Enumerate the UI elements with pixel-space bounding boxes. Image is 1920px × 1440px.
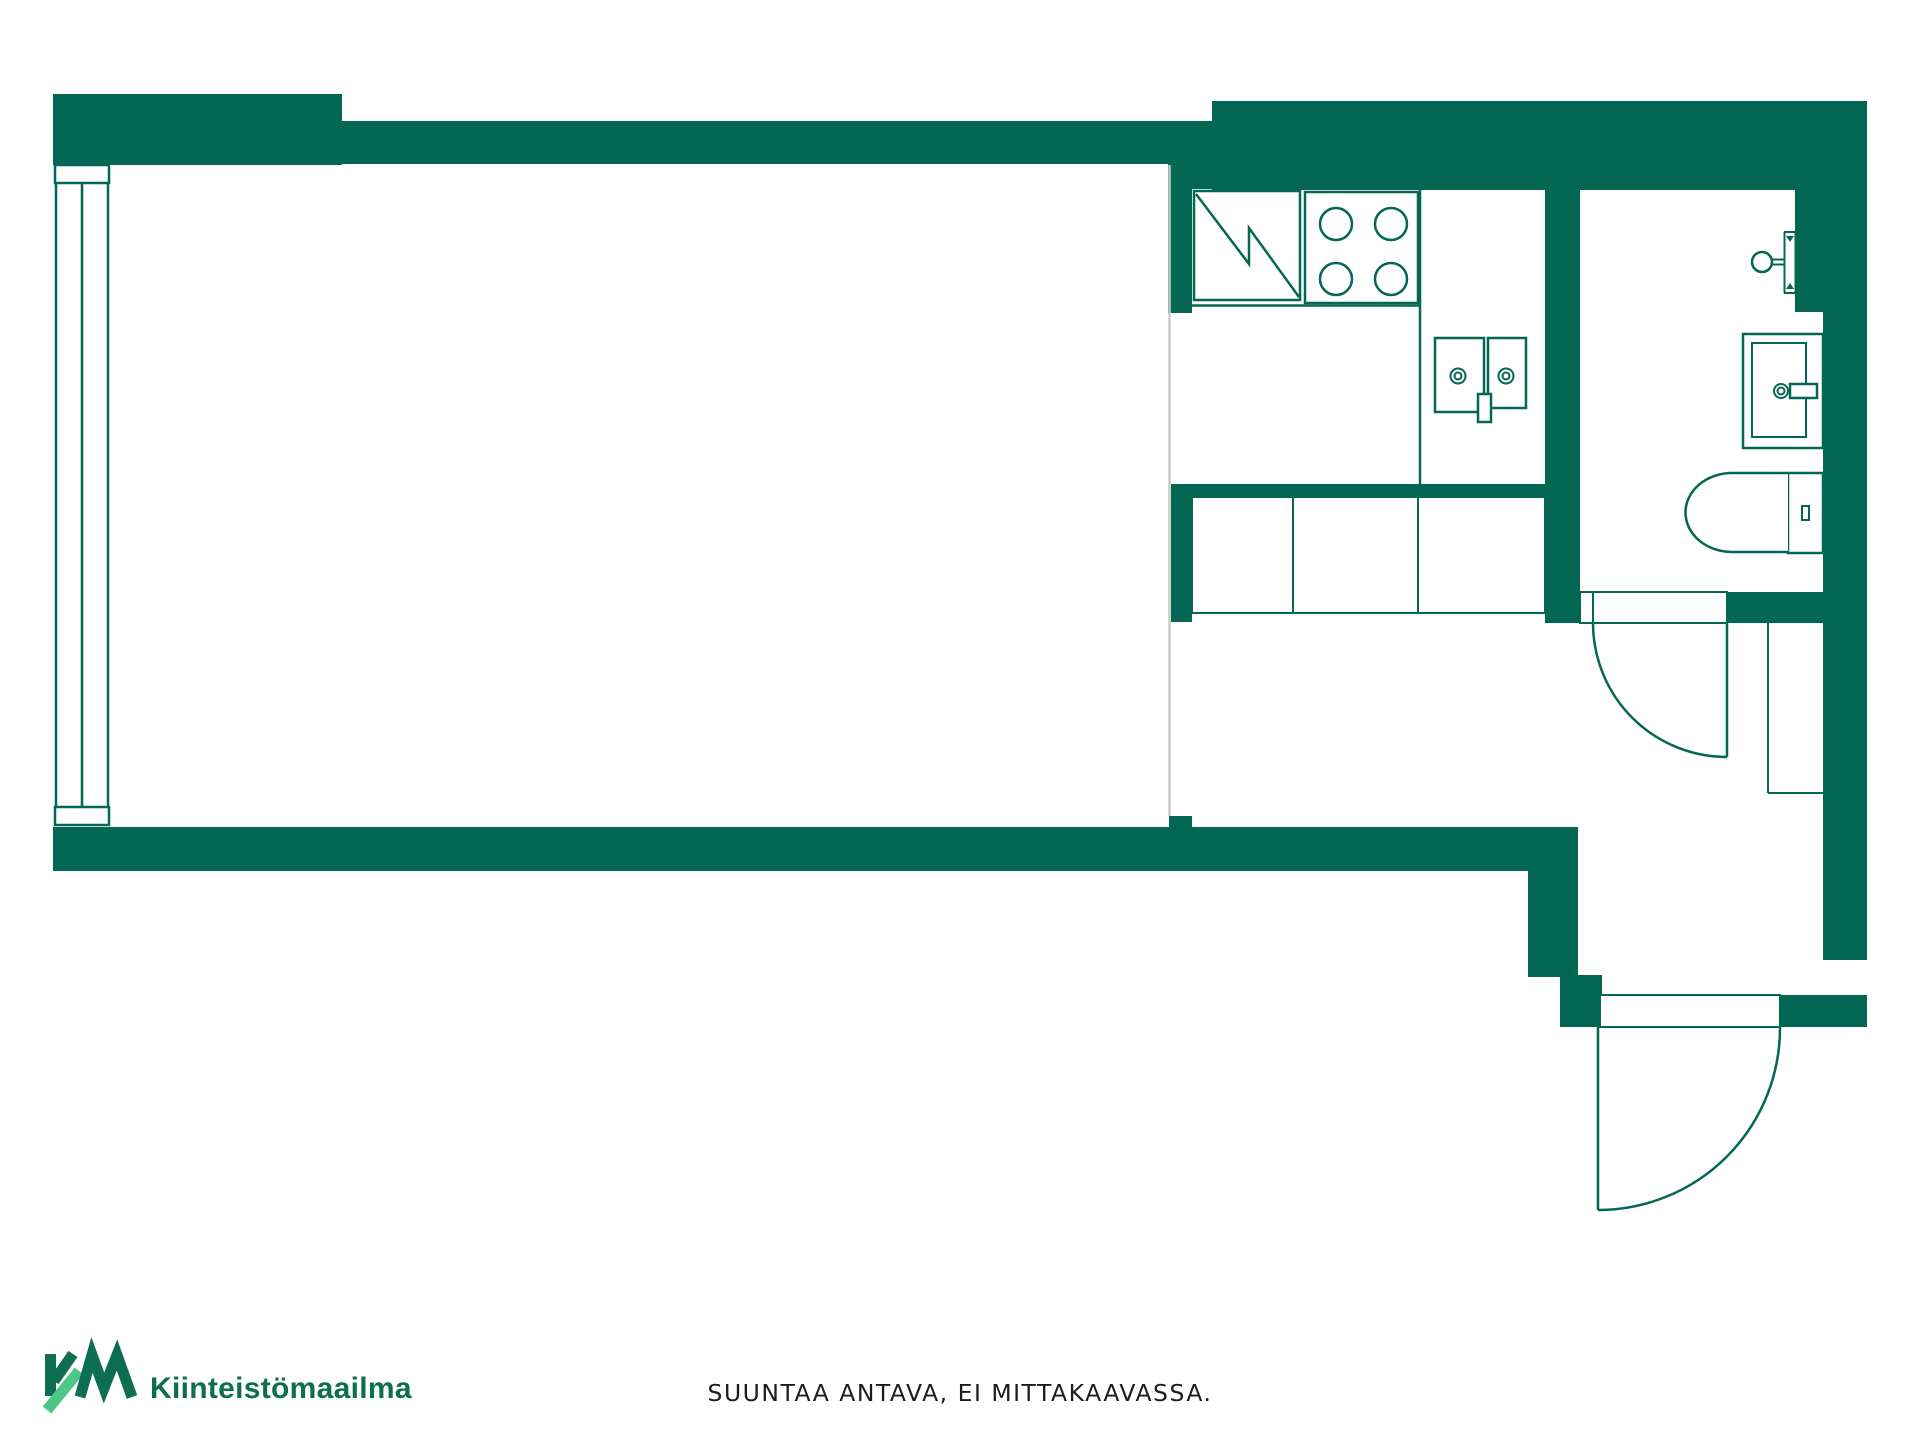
- door-jamb: [1580, 592, 1593, 623]
- logo-text: Kiinteistömaailma: [150, 1372, 412, 1405]
- floor-plan: Kiinteistömaailma SUUNTAA ANTAVA, EI MIT…: [0, 0, 1920, 1440]
- km-logo: [47, 1354, 132, 1410]
- shower-icon: [1752, 232, 1796, 293]
- window-sill-bottom: [55, 807, 109, 825]
- kitchen-cabinets: [1192, 497, 1545, 613]
- logo-m: [80, 1355, 132, 1397]
- exterior-door: [1598, 995, 1780, 1210]
- window-sill-top: [55, 165, 109, 183]
- exterior-walls: [53, 94, 1867, 1027]
- kitchen-sink-icon: [1435, 338, 1526, 422]
- washbasin-faucet-icon: [1790, 384, 1817, 398]
- kitchen-faucet-icon: [1478, 394, 1491, 422]
- toilet-icon: [1686, 473, 1824, 553]
- shower-head-icon: [1752, 252, 1772, 272]
- door-swing-arc: [1593, 623, 1727, 757]
- window: [55, 165, 109, 825]
- door-threshold: [1600, 995, 1780, 1027]
- wardrobe: [1768, 623, 1824, 793]
- stove-icon: [1305, 192, 1418, 303]
- washbasin-icon: [1743, 334, 1823, 448]
- floor-plan-page: Kiinteistömaailma SUUNTAA ANTAVA, EI MIT…: [0, 0, 1920, 1440]
- door-threshold: [1593, 592, 1727, 623]
- disclaimer-text: SUUNTAA ANTAVA, EI MITTAKAAVASSA.: [708, 1379, 1213, 1407]
- fridge-icon: [1194, 191, 1300, 300]
- interior-door: [1580, 592, 1727, 757]
- door-swing-arc: [1598, 1027, 1780, 1210]
- flush-button-icon: [1802, 506, 1809, 520]
- kitchen-fixtures: [1192, 190, 1545, 613]
